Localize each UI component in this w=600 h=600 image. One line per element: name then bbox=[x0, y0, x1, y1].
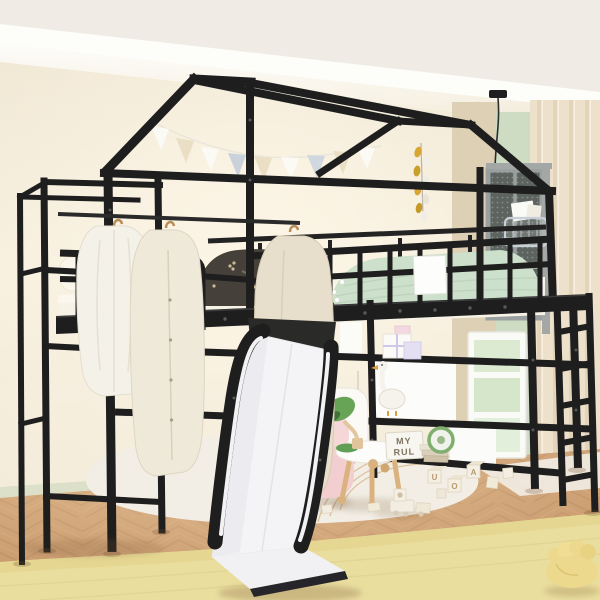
round-photo-frame bbox=[429, 428, 453, 452]
rack-shadow bbox=[20, 539, 164, 557]
block-letter: O bbox=[451, 482, 457, 491]
block-letter: A bbox=[471, 468, 477, 477]
product-photo: MY RUL bbox=[0, 0, 600, 600]
guardrail-panel bbox=[413, 255, 446, 294]
product-photo-canvas: MY RUL bbox=[0, 0, 600, 600]
wooden-ball bbox=[381, 464, 390, 473]
letter-board: MY RUL bbox=[385, 431, 423, 460]
block-letter: U bbox=[432, 473, 438, 482]
coat-cream bbox=[130, 230, 204, 476]
wooden-ball bbox=[368, 459, 378, 469]
letter-board-line1: MY bbox=[396, 436, 412, 447]
letter-board-line2: RUL bbox=[393, 446, 415, 457]
